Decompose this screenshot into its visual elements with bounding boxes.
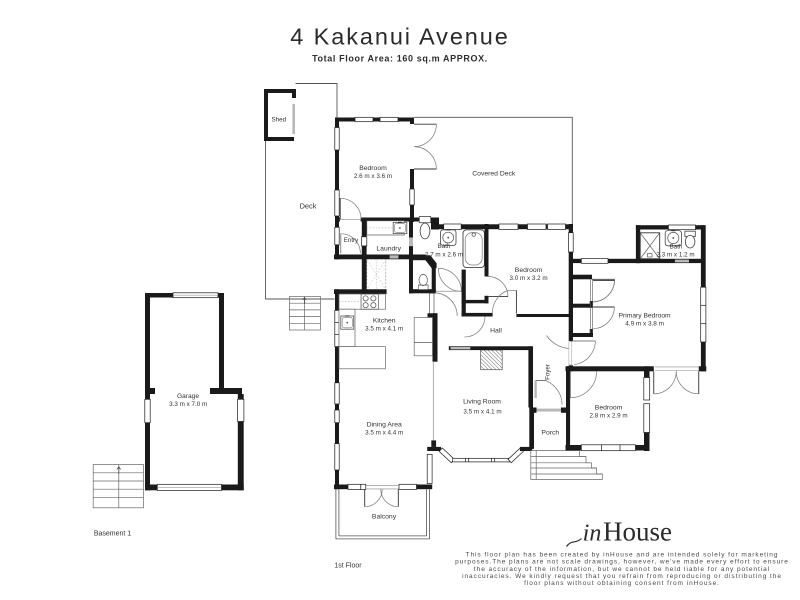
svg-text:purposes.The plans are not sca: purposes.The plans are not scale drawing… [455, 559, 789, 566]
svg-text:3.5 m x 4.1 m: 3.5 m x 4.1 m [365, 326, 403, 333]
svg-text:Balcony: Balcony [372, 514, 397, 521]
svg-text:2.8 m x 2.9 m: 2.8 m x 2.9 m [590, 413, 628, 420]
svg-text:Primary Bedroom: Primary Bedroom [619, 312, 671, 319]
svg-text:Living Room: Living Room [463, 399, 501, 406]
svg-text:1st Floor: 1st Floor [334, 563, 362, 570]
svg-text:Bath: Bath [438, 243, 451, 250]
svg-text:2.6 m x 3.6 m: 2.6 m x 3.6 m [354, 173, 392, 180]
svg-text:4 Kakanui Avenue: 4 Kakanui Avenue [290, 24, 509, 50]
svg-text:Deck: Deck [300, 202, 317, 211]
svg-text:3.3 m x 7.0 m: 3.3 m x 7.0 m [169, 401, 207, 408]
svg-text:Basement 1: Basement 1 [94, 531, 131, 538]
svg-text:in: in [583, 521, 602, 547]
svg-text:Foyer: Foyer [545, 364, 552, 380]
svg-text:Dining Area: Dining Area [367, 421, 402, 428]
svg-text:Entry: Entry [344, 237, 359, 244]
svg-text:the accuracy of the informatio: the accuracy of the information, but we … [474, 566, 770, 573]
svg-text:Shed: Shed [271, 117, 286, 124]
svg-text:floor plans without obtaining: floor plans without obtaining consent fr… [524, 580, 720, 587]
svg-text:Bedroom: Bedroom [515, 267, 543, 274]
svg-text:House: House [603, 517, 672, 547]
svg-text:Garage: Garage [177, 393, 199, 400]
svg-text:inaccuracies. We kindly reques: inaccuracies. We kindly request that you… [462, 573, 782, 580]
svg-text:4.9 m x 3.8 m: 4.9 m x 3.8 m [625, 320, 664, 327]
svg-text:This floor plan has been creat: This floor plan has been created by inHo… [466, 552, 779, 559]
svg-text:Bedroom: Bedroom [595, 405, 623, 412]
svg-text:3.5 m x 4.1 m: 3.5 m x 4.1 m [463, 409, 501, 416]
svg-text:3.5 m x 4.4 m: 3.5 m x 4.4 m [365, 430, 403, 437]
svg-text:Porch: Porch [541, 430, 559, 437]
svg-text:Hall: Hall [490, 328, 502, 335]
svg-text:Total Floor Area: 160 sq.m APP: Total Floor Area: 160 sq.m APPROX. [312, 54, 488, 64]
svg-text:Covered Deck: Covered Deck [472, 171, 516, 178]
svg-text:2.3 m x 1.2 m: 2.3 m x 1.2 m [656, 252, 694, 259]
svg-text:Bath: Bath [670, 243, 683, 250]
svg-text:Kitchen: Kitchen [373, 317, 396, 324]
svg-text:3.0 m x 3.2 m: 3.0 m x 3.2 m [510, 275, 548, 282]
svg-text:Laundry: Laundry [376, 246, 401, 253]
svg-text:Bedroom: Bedroom [359, 165, 387, 172]
svg-text:2.7 m x 2.6 m: 2.7 m x 2.6 m [425, 252, 463, 259]
